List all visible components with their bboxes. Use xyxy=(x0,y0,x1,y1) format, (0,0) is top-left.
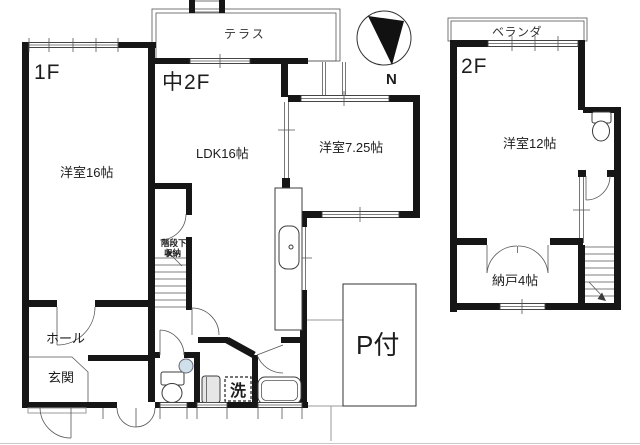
label-ldk: LDK16帖 xyxy=(196,146,249,161)
diagonal-wall xyxy=(227,340,254,355)
window-ldk-top xyxy=(190,54,250,68)
door-arc-bath xyxy=(257,355,283,373)
label-1f: 1F xyxy=(34,61,61,84)
door-arc-back-right xyxy=(136,408,155,427)
label-laundry: 洗 xyxy=(230,381,246,400)
label-2f: 2F xyxy=(461,55,488,78)
label-western16: 洋室16帖 xyxy=(60,165,113,180)
bottom-wall-openings xyxy=(103,402,302,427)
window-1f-top xyxy=(29,38,118,52)
door-arc-toilet-2f xyxy=(586,176,610,200)
kitchen-counter xyxy=(275,188,302,330)
closet-door-right xyxy=(518,246,548,273)
label-under-stair-2: 収納 xyxy=(164,248,181,258)
label-terrace: テラス xyxy=(224,27,266,41)
toilet-bowl-icon xyxy=(162,384,182,403)
label-veranda: ベランダ xyxy=(492,24,542,39)
stair-arrow-2f-head xyxy=(598,293,607,302)
terrace-step xyxy=(193,1,221,12)
washroom-fixtures xyxy=(202,376,301,404)
door-arc-toilet xyxy=(160,330,184,355)
window-western725-top xyxy=(301,91,389,106)
label-mid2f: 中2F xyxy=(162,71,211,94)
door-arc-hall xyxy=(192,308,219,335)
floor-plan-drawing: 1F 中2F 2F テラス ベランダ 洋室16帖 LDK16帖 洋室7.25帖 … xyxy=(0,0,640,445)
hall-genkan xyxy=(28,355,148,438)
label-western725: 洋室7.25帖 xyxy=(319,140,383,155)
toilet-bowl-2f-icon xyxy=(593,121,610,141)
entrance-step xyxy=(28,408,86,413)
door-arc-back-left xyxy=(117,408,136,427)
toilet-room-mid xyxy=(148,330,200,408)
window-2f-right xyxy=(573,177,590,243)
door-arc-stair-storage xyxy=(160,214,186,240)
wash-basin-icon xyxy=(179,359,193,373)
label-entrance: 玄関 xyxy=(48,370,74,385)
mid-plan-windows xyxy=(29,38,399,290)
floor-plan-page: 1F 中2F 2F テラス ベランダ 洋室16帖 LDK16帖 洋室7.25帖 … xyxy=(0,0,640,445)
label-western12: 洋室12帖 xyxy=(503,136,556,151)
compass-needle xyxy=(368,16,404,65)
vanity-icon xyxy=(202,376,220,403)
parking-area xyxy=(307,284,416,441)
label-hall: ホール xyxy=(46,331,85,346)
window-western725-bottom xyxy=(322,207,399,222)
closet-door-left xyxy=(487,246,517,273)
label-parking: P付 xyxy=(356,330,399,360)
wall-1f-bottom xyxy=(22,300,150,345)
compass-icon xyxy=(357,11,411,65)
label-storage4: 納戸4帖 xyxy=(492,273,538,288)
label-under-stair-1: 階段下 xyxy=(161,238,187,248)
label-north: N xyxy=(386,71,397,88)
